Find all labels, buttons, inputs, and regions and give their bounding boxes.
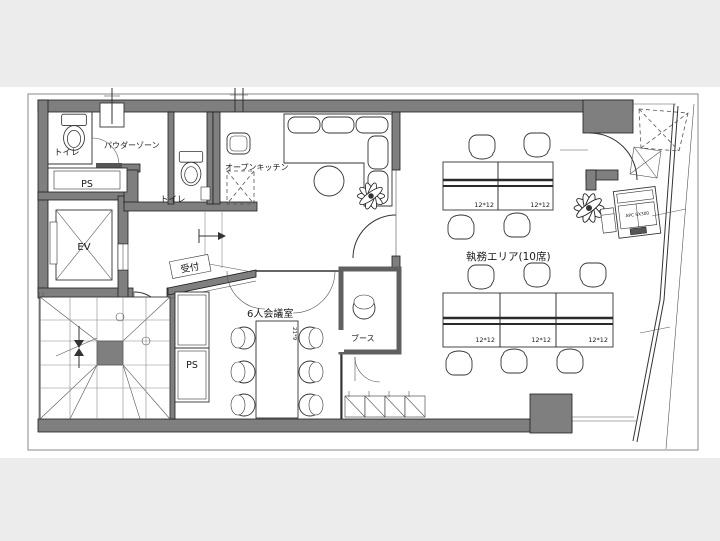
meeting-room-label: 6人会議室: [247, 307, 293, 320]
door-threshold: [96, 163, 122, 168]
ps2-label: PS: [186, 360, 198, 371]
desk-chair: [501, 349, 527, 373]
pipe-space-1: PS: [48, 168, 127, 192]
desk-chair: [524, 263, 550, 287]
round-table: [314, 166, 344, 196]
meeting-chair: [299, 394, 323, 416]
toilet-1-label: トイレ: [54, 148, 80, 158]
elevator: EV: [48, 200, 128, 288]
ps1-label: PS: [81, 179, 93, 190]
meeting-chair: [231, 327, 255, 349]
desk-size-label: 12*12: [588, 336, 608, 344]
meeting-chair: [299, 361, 323, 383]
stair-core: [97, 341, 123, 365]
desk-chair: [468, 265, 494, 289]
desk-size-label: 12*12: [531, 336, 551, 344]
desk-size-label: 12*12: [475, 336, 495, 344]
floor-plan-page: トイレ パウダーゾーン PS EV トイレ オープンキッチン: [0, 0, 720, 541]
booth-label: ブース: [351, 333, 375, 343]
work-area-label: 執務エリア(10席): [466, 250, 551, 263]
desk-chair: [504, 213, 530, 237]
meeting-chair: [299, 327, 323, 349]
booth-opening: [337, 330, 344, 352]
pipe-space-2: PS: [175, 292, 209, 402]
desk-chair: [524, 133, 550, 157]
desk-chair: [448, 215, 474, 239]
open-kitchen-label: オープンキッチン: [225, 163, 289, 172]
meeting-table-size-label: 21*9: [291, 327, 297, 341]
floor-plan-drawing: トイレ パウダーゾーン PS EV トイレ オープンキッチン: [0, 0, 720, 541]
elevator-label: EV: [77, 242, 90, 253]
meeting-chair: [231, 394, 255, 416]
toilet-2-label: トイレ: [160, 195, 186, 205]
desk-chair: [580, 263, 606, 287]
stairs: [40, 297, 170, 419]
toilet-fixture: [179, 151, 202, 185]
desk-size-label: 12*12: [530, 201, 550, 209]
desk-size-label: 12*12: [474, 201, 494, 209]
meeting-chair: [231, 361, 255, 383]
toilet-fixture: [62, 114, 87, 150]
powder-zone-label: パウダーゾーン: [104, 140, 160, 150]
desk-chair: [446, 351, 472, 375]
desk-chair: [469, 135, 495, 159]
booth-chair: [353, 295, 375, 319]
desk-chair: [557, 349, 583, 373]
